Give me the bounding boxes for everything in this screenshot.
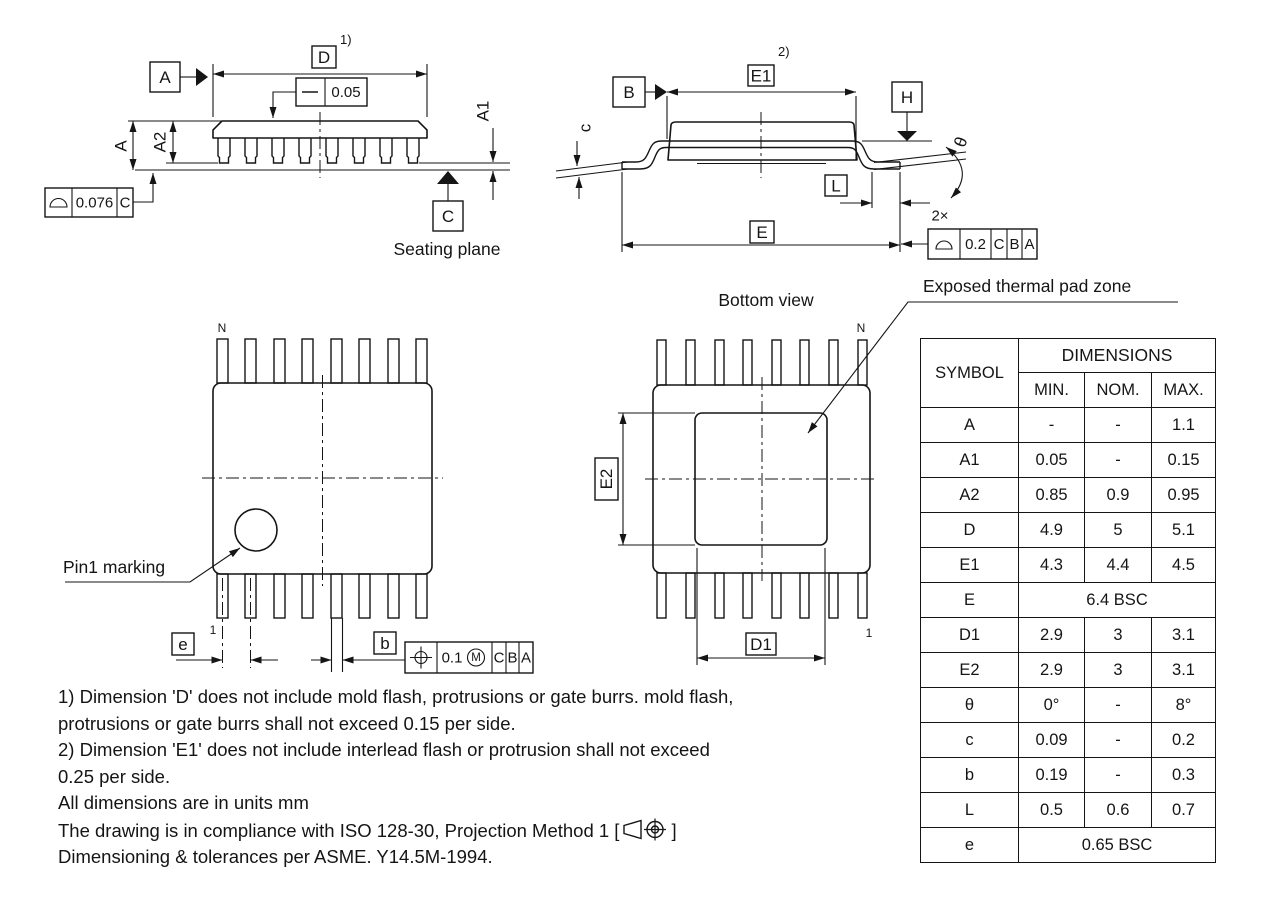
max-cell: 0.2: [1152, 723, 1216, 758]
max-cell: 3.1: [1152, 618, 1216, 653]
span-cell: 0.65 BSC: [1019, 828, 1216, 863]
pin: [388, 574, 399, 618]
dim-label-c: c: [576, 123, 595, 132]
symbol-cell: D1: [921, 618, 1019, 653]
table-row: A1 0.05 - 0.15: [921, 443, 1216, 478]
pin: [715, 340, 724, 385]
max-cell: 0.3: [1152, 758, 1216, 793]
pin1-marking-circle: [235, 509, 277, 551]
dim-label-l: L: [831, 177, 840, 196]
lead: [245, 138, 257, 163]
note-line-5: All dimensions are in units mm: [58, 790, 938, 817]
pin: [331, 574, 342, 618]
datum-label-c: C: [442, 207, 454, 226]
symbol-cell: E2: [921, 653, 1019, 688]
min-cell: 2.9: [1019, 653, 1085, 688]
nom-cell: -: [1085, 443, 1152, 478]
exposed-pad-label: Exposed thermal pad zone: [923, 276, 1131, 296]
symbol-header: SYMBOL: [921, 339, 1019, 408]
nom-cell: 0.6: [1085, 793, 1152, 828]
fcf-modifier-m: M: [471, 652, 481, 664]
pin: [274, 339, 285, 383]
table-row: D 4.9 5 5.1: [921, 513, 1216, 548]
count-2x: 2×: [931, 208, 948, 225]
max-cell: 8°: [1152, 688, 1216, 723]
pin-n-label: N: [857, 321, 866, 335]
lead: [299, 138, 311, 163]
symbol-cell: A2: [921, 478, 1019, 513]
profile-surface-icon: [936, 241, 952, 249]
dim-label-b: b: [380, 634, 389, 653]
max-cell: 0.7: [1152, 793, 1216, 828]
pin: [359, 339, 370, 383]
pin: [302, 574, 313, 618]
table-row: E2 2.9 3 3.1: [921, 653, 1216, 688]
lead: [380, 138, 392, 163]
nom-cell: 0.9: [1085, 478, 1152, 513]
pin: [829, 340, 838, 385]
extension-line: [556, 162, 628, 171]
note-line-6-prefix: The drawing is in compliance with ISO 12…: [58, 820, 619, 841]
dim-label-theta: θ: [950, 134, 971, 149]
table-row: A - - 1.1: [921, 408, 1216, 443]
pin: [772, 573, 781, 618]
symbol-cell: E1: [921, 548, 1019, 583]
max-header: MAX.: [1152, 373, 1216, 408]
note-line-6-suffix: ]: [671, 820, 676, 841]
pin: [245, 339, 256, 383]
table-row: E1 4.3 4.4 4.5: [921, 548, 1216, 583]
pin: [217, 339, 228, 383]
fcf-datum-2: B: [1009, 236, 1019, 253]
note-line-7: Dimensioning & tolerances per ASME. Y14.…: [58, 844, 938, 871]
datum-label-h: H: [901, 88, 913, 107]
pin: [657, 340, 666, 385]
dim-label-a2: A2: [151, 132, 170, 153]
min-cell: 0.09: [1019, 723, 1085, 758]
min-cell: 0°: [1019, 688, 1085, 723]
nom-cell: 4.4: [1085, 548, 1152, 583]
profile-surface-icon: [50, 199, 67, 208]
min-cell: 2.9: [1019, 618, 1085, 653]
nom-cell: 3: [1085, 653, 1152, 688]
projection-method-icon: [621, 817, 669, 842]
dim-label-e2: E2: [597, 469, 616, 490]
pin: [858, 573, 867, 618]
fcf-profile-datum: C: [120, 195, 131, 212]
fcf-datum-2: B: [507, 650, 517, 667]
drawing-notes: 1) Dimension 'D' does not include mold f…: [58, 684, 938, 871]
dimensions-header: DIMENSIONS: [1019, 339, 1216, 373]
note-line-6: The drawing is in compliance with ISO 12…: [58, 817, 938, 845]
fcf-datum-1: C: [994, 236, 1005, 253]
nom-cell: -: [1085, 723, 1152, 758]
max-cell: 0.15: [1152, 443, 1216, 478]
min-cell: 0.5: [1019, 793, 1085, 828]
dimensions-table: SYMBOL DIMENSIONS MIN. NOM. MAX. A - - 1…: [920, 338, 1216, 863]
min-cell: 0.19: [1019, 758, 1085, 793]
nom-cell: -: [1085, 408, 1152, 443]
fcf-profile-value: 0.076: [76, 195, 114, 212]
min-cell: 0.85: [1019, 478, 1085, 513]
fcf-datum-3: A: [521, 650, 531, 667]
dim-label-e-pitch: e: [178, 635, 187, 654]
table-row: E 6.4 BSC: [921, 583, 1216, 618]
dim-label-d: D: [318, 48, 330, 67]
dim-label-a: A: [112, 140, 131, 152]
table-row: D1 2.9 3 3.1: [921, 618, 1216, 653]
datum-triangle: [196, 68, 208, 86]
lead: [218, 138, 230, 163]
note-line-1: 1) Dimension 'D' does not include mold f…: [58, 684, 938, 711]
pin: [686, 340, 695, 385]
nom-cell: -: [1085, 688, 1152, 723]
note-ref-2: 2): [778, 44, 790, 59]
datum-triangle: [655, 84, 667, 100]
fcf-datum-1: C: [494, 650, 505, 667]
pin: [829, 573, 838, 618]
pin: [359, 574, 370, 618]
fcf-value: 0.2: [965, 236, 986, 253]
table-row: θ 0° - 8°: [921, 688, 1216, 723]
pin: [274, 574, 285, 618]
pin: [772, 340, 781, 385]
pin-n-label: N: [218, 321, 227, 335]
pin: [800, 340, 809, 385]
table-row: e 0.65 BSC: [921, 828, 1216, 863]
bottom-view-title: Bottom view: [718, 290, 814, 310]
nom-cell: 3: [1085, 618, 1152, 653]
pin: [416, 574, 427, 618]
pin: [686, 573, 695, 618]
pin: [416, 339, 427, 383]
package-outline-drawing: A A2 D 1) A 0.05 A1: [0, 0, 1280, 899]
dim-label-d1: D1: [750, 635, 772, 654]
seating-plane-label: Seating plane: [393, 239, 500, 259]
pin: [743, 340, 752, 385]
lead: [326, 138, 338, 163]
angle-arc: [946, 147, 962, 198]
table-row: c 0.09 - 0.2: [921, 723, 1216, 758]
dim-label-e: E: [756, 223, 767, 242]
note-line-2: protrusions or gate burrs shall not exce…: [58, 711, 938, 738]
nom-header: NOM.: [1085, 373, 1152, 408]
top-view: N 1 Pin1 marking e b: [63, 321, 533, 673]
lead: [407, 138, 419, 163]
min-cell: 4.3: [1019, 548, 1085, 583]
leader-arrow: [133, 173, 153, 202]
position-icon: [410, 647, 432, 669]
note-line-4: 0.25 per side.: [58, 764, 938, 791]
span-cell: 6.4 BSC: [1019, 583, 1216, 618]
datum-triangle: [437, 171, 459, 184]
side-view: A A2 D 1) A 0.05 A1: [45, 32, 510, 259]
min-cell: -: [1019, 408, 1085, 443]
table-row: b 0.19 - 0.3: [921, 758, 1216, 793]
symbol-cell: A: [921, 408, 1019, 443]
dim-label-a1: A1: [474, 101, 493, 122]
max-cell: 0.95: [1152, 478, 1216, 513]
note-ref-1: 1): [340, 32, 352, 47]
pin-1-label: 1: [210, 623, 217, 637]
pin: [800, 573, 809, 618]
pin: [715, 573, 724, 618]
symbol-cell: E: [921, 583, 1019, 618]
symbol-cell: D: [921, 513, 1019, 548]
max-cell: 4.5: [1152, 548, 1216, 583]
min-cell: 4.9: [1019, 513, 1085, 548]
pin: [388, 339, 399, 383]
max-cell: 1.1: [1152, 408, 1216, 443]
max-cell: 5.1: [1152, 513, 1216, 548]
extension-line: [556, 169, 628, 178]
pin: [657, 573, 666, 618]
nom-cell: 5: [1085, 513, 1152, 548]
datum-triangle: [897, 131, 917, 141]
symbol-cell: A1: [921, 443, 1019, 478]
datum-label-b: B: [623, 83, 634, 102]
pin-1-label: 1: [866, 626, 873, 640]
lead: [353, 138, 365, 163]
max-cell: 3.1: [1152, 653, 1216, 688]
table-row: A2 0.85 0.9 0.95: [921, 478, 1216, 513]
end-view: E1 2) B H c θ: [556, 44, 1037, 259]
pin: [302, 339, 313, 383]
dim-label-e1: E1: [751, 67, 772, 86]
fcf-datum-3: A: [1024, 236, 1034, 253]
pin1-marking-label: Pin1 marking: [63, 557, 165, 577]
min-cell: 0.05: [1019, 443, 1085, 478]
fcf-straightness-value: 0.05: [331, 84, 360, 101]
pin: [743, 573, 752, 618]
min-header: MIN.: [1019, 373, 1085, 408]
pin: [331, 339, 342, 383]
datum-label-a: A: [159, 68, 171, 87]
table-row: L 0.5 0.6 0.7: [921, 793, 1216, 828]
fcf-value: 0.1: [442, 650, 463, 667]
lead: [272, 138, 284, 163]
leader-arrow: [273, 92, 296, 118]
note-line-3: 2) Dimension 'E1' does not include inter…: [58, 737, 938, 764]
nom-cell: -: [1085, 758, 1152, 793]
